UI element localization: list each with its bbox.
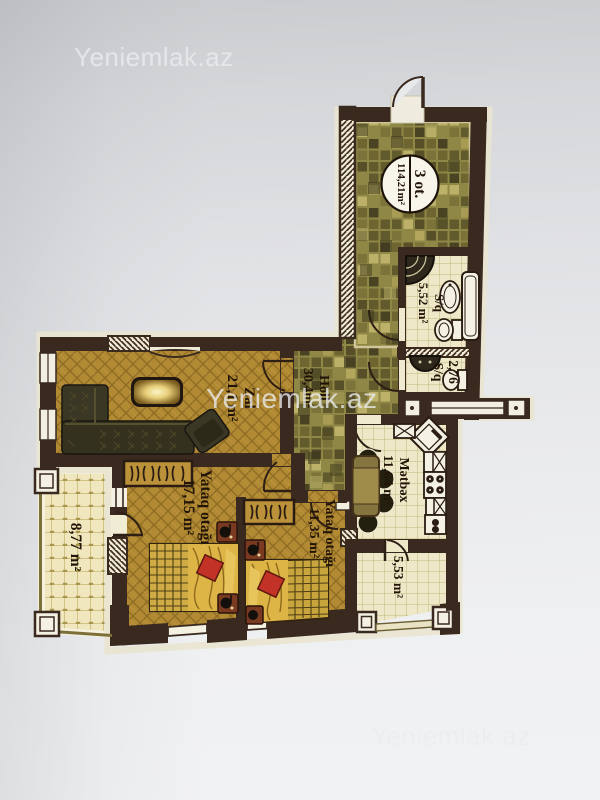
svg-text:2,76S/q: 2,76S/q bbox=[431, 360, 461, 384]
svg-text:5,53 m²: 5,53 m² bbox=[391, 556, 406, 598]
svg-text:Mətbəx11,64 m²: Mətbəx11,64 m² bbox=[380, 455, 411, 505]
svg-text:Yataq otağı11,35 m²: Yataq otağı11,35 m² bbox=[306, 499, 337, 567]
svg-text:Yataq otağı17,15 m²: Yataq otağı17,15 m² bbox=[180, 469, 214, 545]
svg-text:8,77 m²: 8,77 m² bbox=[67, 523, 84, 572]
